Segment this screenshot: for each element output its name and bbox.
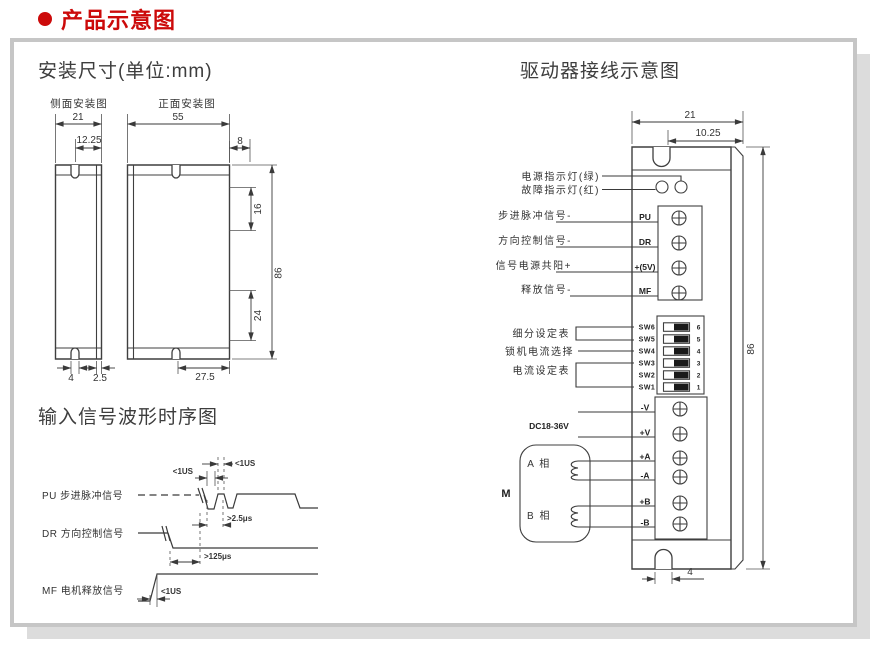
mf-delay-annotation: <1US [137, 587, 182, 599]
signal-name-dr: DR 方向控制信号 [42, 527, 124, 540]
pin-label: MF [639, 286, 651, 296]
signal-label: 信号电源共阳+ [496, 259, 572, 272]
dip-row: SW3 3 [639, 359, 701, 368]
dim-tab-depth: 8 [230, 136, 251, 162]
dim-wall-thickness: 2.5 [83, 361, 115, 384]
side-view-drawing [56, 165, 102, 359]
screw-terminal [673, 402, 687, 416]
section-title-timing: 输入信号波形时序图 [38, 402, 218, 429]
front-view-label: 正面安装图 [158, 97, 216, 110]
pin-label: +V [640, 428, 651, 438]
dip-switch-block: SW6 6 SW5 5 SW4 4 SW3 3 SW2 [505, 316, 704, 394]
side-view-label: 侧面安装图 [50, 97, 108, 110]
svg-text:86: 86 [746, 343, 757, 355]
pin-label: +B [639, 497, 650, 507]
phase-b-label: B 相 [527, 509, 551, 522]
screw-terminal [673, 451, 687, 465]
svg-text:>2.5μs: >2.5μs [227, 514, 253, 523]
section-title-wiring: 驱动器接线示意图 [450, 56, 750, 83]
svg-text:<1US: <1US [235, 459, 256, 468]
svg-text:10.25: 10.25 [695, 128, 720, 139]
pu-waveform [138, 488, 318, 509]
svg-text:1: 1 [697, 385, 701, 392]
led-indicators: 电源指示灯(绿) 故障指示灯(红) [521, 170, 687, 197]
svg-text:12.25: 12.25 [76, 135, 101, 146]
driver-wiring-diagram: 21 10.25 86 4 电源指示灯(绿) 故障指示灯(红) [480, 105, 790, 595]
svg-text:21: 21 [684, 110, 696, 121]
svg-text:4: 4 [68, 373, 74, 384]
current-label: 电流设定表 [513, 364, 571, 377]
svg-text:SW1: SW1 [639, 385, 656, 392]
signal-terminal-block: 步进脉冲信号- 方向控制信号- 信号电源共阳+ 释放信号- PU DR +(5V… [496, 206, 702, 300]
dim-driver-notch-offset: 10.25 [668, 128, 743, 145]
screw-terminal [672, 211, 686, 225]
screw-terminal [673, 496, 687, 510]
dip-row: SW4 4 [639, 347, 701, 356]
pin-label: +A [639, 452, 650, 462]
screw-terminal [672, 286, 686, 300]
pin-label: DR [639, 237, 651, 247]
dim-front-notch-offset: 27.5 [178, 361, 230, 383]
svg-text:>125μs: >125μs [204, 552, 232, 561]
led-power-label: 电源指示灯(绿) [521, 170, 600, 183]
dim-driver-width: 21 [632, 110, 743, 144]
signal-name-pu: PU 步进脉冲信号 [42, 489, 123, 502]
svg-text:<1US: <1US [161, 587, 182, 596]
section-title-mounting: 安装尺寸(单位:mm) [38, 56, 213, 83]
dim-slot-top: 16 [230, 188, 265, 231]
svg-text:27.5: 27.5 [195, 372, 215, 383]
screw-terminal [673, 427, 687, 441]
dr-waveform [138, 526, 318, 548]
pulse-low-annotation: <1US [173, 467, 228, 486]
red-bullet-icon [38, 12, 52, 26]
screw-terminal [673, 470, 687, 484]
svg-text:4: 4 [687, 567, 693, 578]
phase-a-label: A 相 [527, 457, 550, 470]
timing-diagram: PU 步进脉冲信号 DR 方向控制信号 MF 电机释放信号 <1US <1US [30, 440, 365, 620]
svg-text:SW2: SW2 [639, 373, 656, 380]
svg-text:8: 8 [237, 136, 243, 147]
dim-side-notch-offset: 12.25 [76, 135, 102, 162]
dim-front-width: 55 [128, 112, 230, 163]
dim-driver-height: 86 [746, 147, 770, 569]
screw-terminal [672, 236, 686, 250]
supply-voltage-label: DC18-36V [529, 421, 569, 431]
svg-text:2.5: 2.5 [93, 373, 107, 384]
dip-row: SW2 2 [639, 371, 701, 380]
led-fault-label: 故障指示灯(红) [521, 184, 600, 197]
svg-text:SW3: SW3 [639, 361, 656, 368]
svg-text:24: 24 [253, 310, 264, 322]
svg-text:21: 21 [72, 112, 84, 123]
dip-row: SW6 6 [639, 323, 701, 332]
svg-text:<1US: <1US [173, 467, 194, 476]
pin-label: PU [639, 212, 651, 222]
pulse-width-annotation: <1US [202, 457, 256, 491]
svg-text:5: 5 [697, 337, 701, 344]
svg-text:SW5: SW5 [639, 337, 656, 344]
svg-text:4: 4 [697, 349, 701, 356]
svg-text:86: 86 [274, 267, 285, 279]
dip-row: SW1 1 [639, 383, 701, 392]
svg-text:SW4: SW4 [639, 349, 656, 356]
coil-a [571, 461, 578, 480]
front-view-drawing [128, 165, 230, 359]
pin-label: -A [641, 471, 650, 481]
signal-name-mf: MF 电机释放信号 [42, 584, 124, 597]
svg-text:3: 3 [697, 361, 701, 368]
signal-label: 释放信号- [521, 283, 572, 296]
lock-current-label: 锁机电流选择 [505, 345, 574, 358]
dim-notch-width: 4 [57, 361, 93, 384]
dir-setup-annotation: >125μs [170, 513, 232, 567]
dim-height: 86 [232, 165, 285, 359]
svg-text:SW6: SW6 [639, 325, 656, 332]
mounting-diagram: 侧面安装图 正面安装图 21 12.25 [30, 95, 310, 395]
content-panel: 安装尺寸(单位:mm) 驱动器接线示意图 输入信号波形时序图 侧面安装图 正面安… [10, 38, 857, 627]
pin-label: +(5V) [634, 262, 655, 272]
svg-text:16: 16 [253, 203, 264, 215]
period-annotation: >2.5μs [192, 500, 253, 530]
svg-text:6: 6 [697, 325, 701, 332]
signal-label: 步进脉冲信号- [498, 209, 572, 222]
svg-text:55: 55 [172, 112, 184, 123]
dim-slot-bottom: 24 [230, 291, 265, 341]
signal-label: 方向控制信号- [498, 234, 572, 247]
subdivision-label: 细分设定表 [513, 327, 571, 340]
power-terminal-block: -V +V +A -A +B -B DC18-36V [529, 397, 707, 539]
dip-row: SW5 5 [639, 335, 701, 344]
screw-terminal [672, 261, 686, 275]
svg-text:2: 2 [697, 373, 701, 380]
pin-label: -V [641, 403, 650, 413]
pin-label: -B [641, 518, 650, 528]
screw-terminal [673, 517, 687, 531]
page-title: 产品示意图 [61, 3, 176, 35]
coil-b [571, 506, 578, 527]
motor-label: M [501, 488, 510, 500]
page-header: 产品示意图 [38, 3, 176, 35]
